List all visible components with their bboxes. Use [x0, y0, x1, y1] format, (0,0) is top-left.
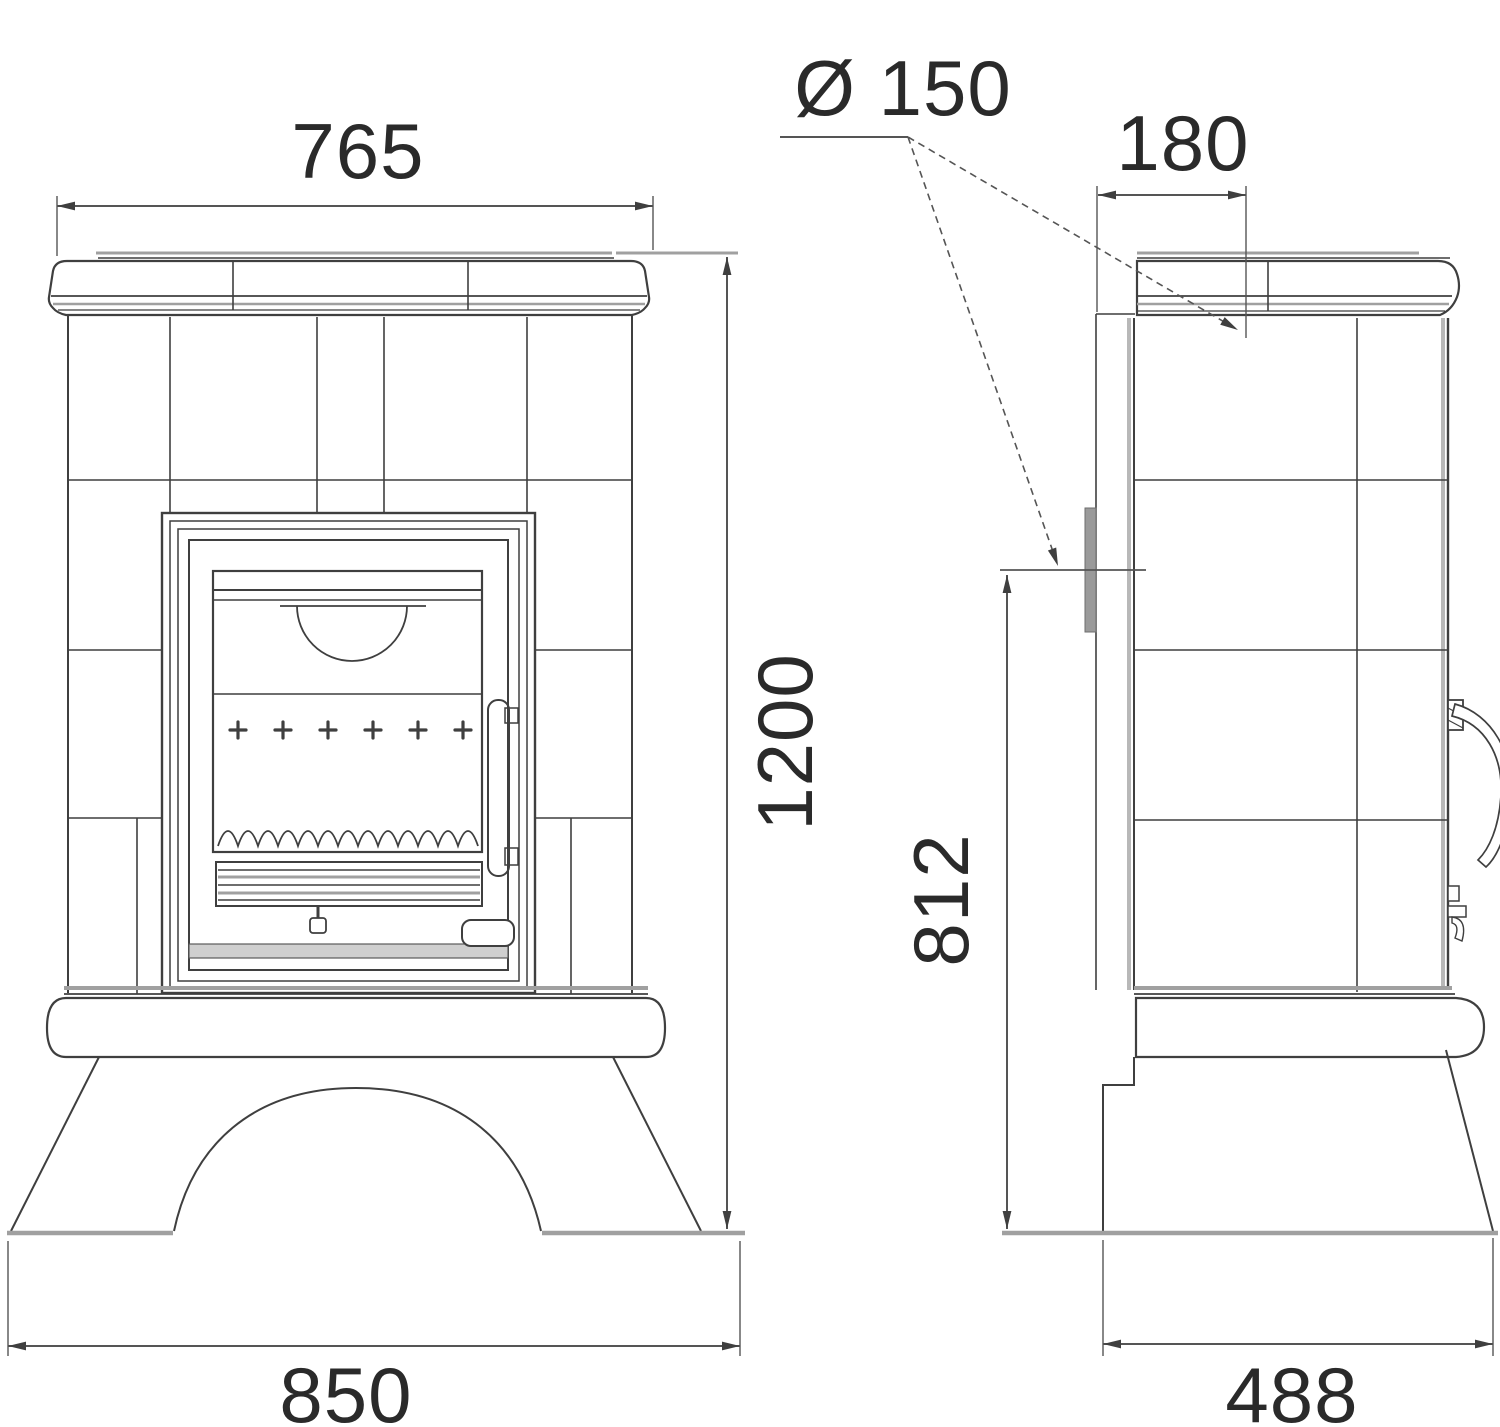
technical-drawing-page: 765 1200 850 Ø 150 180 8 — [0, 0, 1500, 1427]
side-top-cap — [1137, 253, 1459, 315]
front-base-arch — [7, 1057, 745, 1233]
stove-dimension-diagram: 765 1200 850 Ø 150 180 8 — [0, 0, 1500, 1427]
dim-label-base-width: 850 — [279, 1351, 412, 1427]
door-glass — [213, 571, 482, 852]
side-door-handle — [1448, 700, 1500, 867]
side-base — [1002, 1050, 1498, 1233]
front-top-cap — [49, 253, 649, 315]
vent-grill — [216, 862, 482, 906]
door-sill — [189, 944, 508, 958]
dim-base-depth: 488 — [1103, 1238, 1493, 1427]
dim-base-width: 850 — [8, 1241, 740, 1427]
dim-label-flue-offset: 180 — [1116, 99, 1249, 187]
dim-label-base-depth: 488 — [1225, 1351, 1358, 1427]
dim-rear-flue-height: 812 — [897, 570, 1146, 1229]
dim-label-rear-flue-height: 812 — [897, 833, 985, 966]
side-body-tiles — [1129, 318, 1448, 992]
dim-top-width: 765 — [57, 107, 653, 256]
side-plinth — [1134, 988, 1484, 1057]
dim-overall-height: 1200 — [616, 253, 829, 1229]
side-latch — [1448, 886, 1466, 941]
dim-label-overall-height: 1200 — [741, 653, 829, 831]
dim-label-top-width: 765 — [291, 107, 424, 195]
stove-door — [162, 513, 535, 993]
side-view — [1002, 253, 1500, 1233]
front-view — [7, 253, 745, 1233]
dim-label-flue-diameter: Ø 150 — [794, 44, 1011, 132]
base-arch-curve — [174, 1088, 541, 1231]
front-plinth — [47, 988, 665, 1057]
door-latch — [462, 920, 514, 946]
flue-leader-rear — [908, 137, 1058, 566]
